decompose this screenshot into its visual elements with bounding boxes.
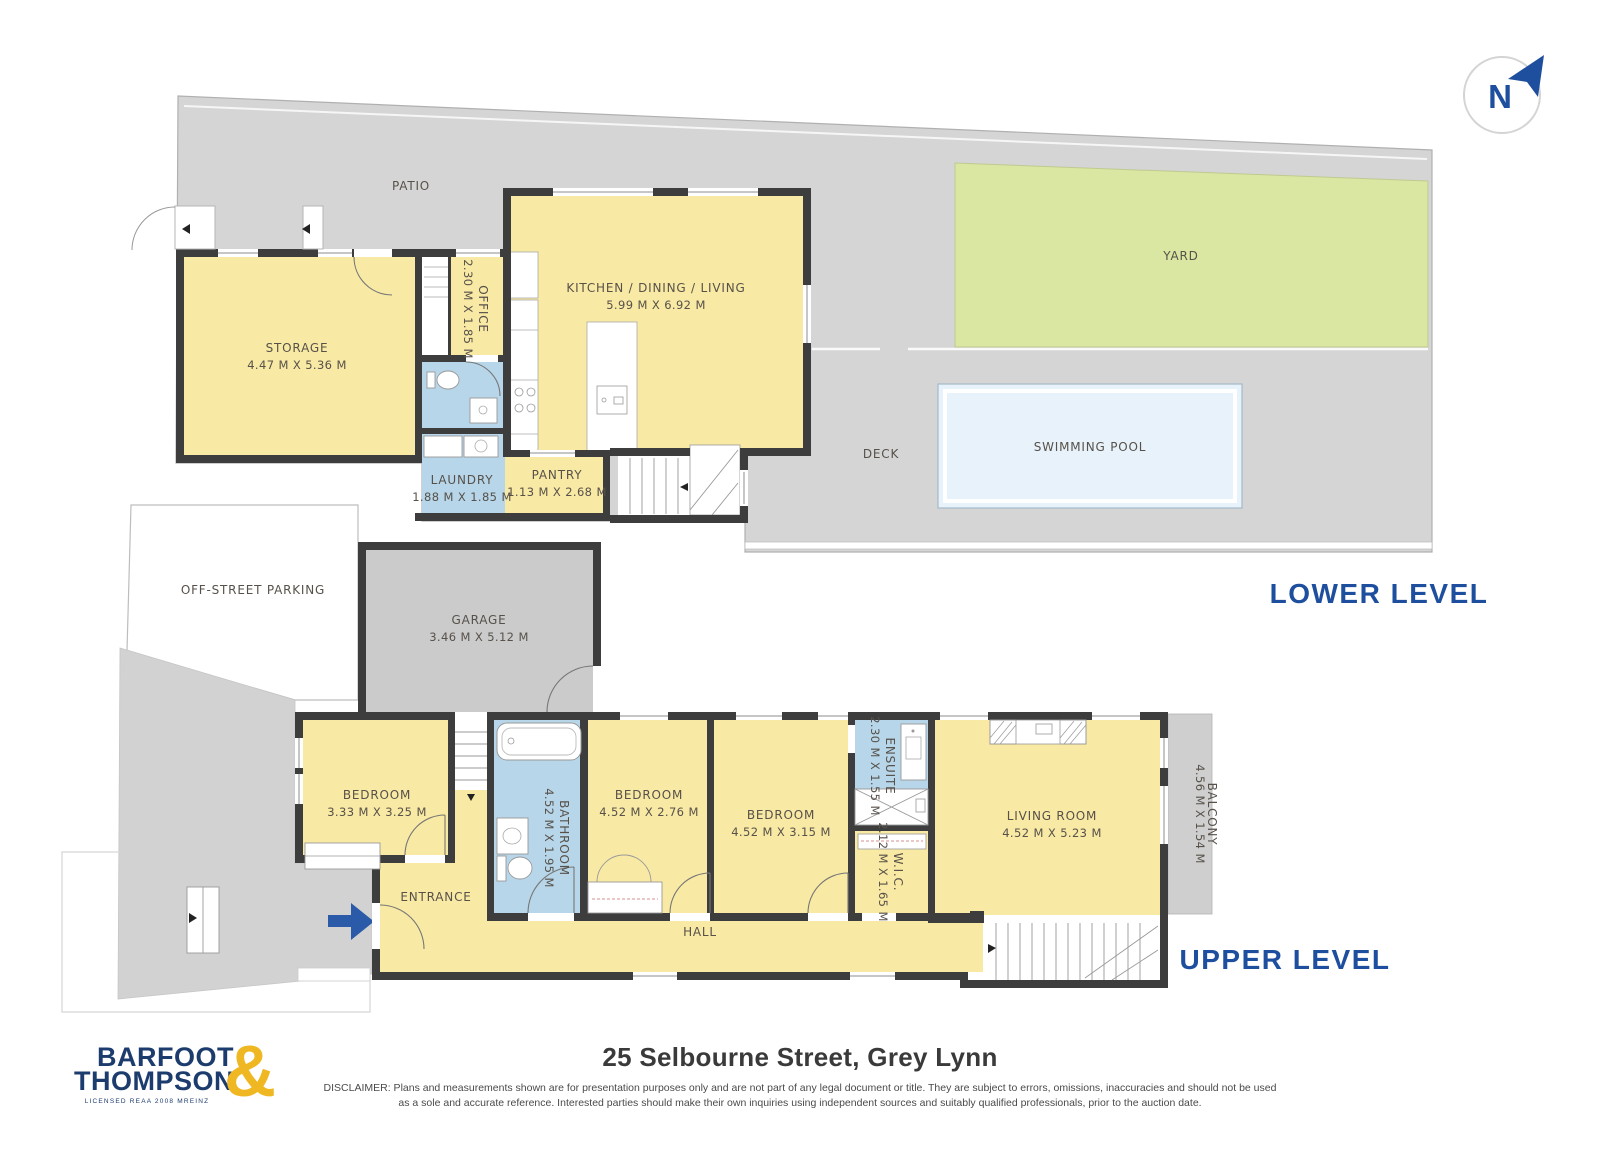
balcony-dims: 4.56 M X 1.54 M (1193, 764, 1207, 864)
floor-plan-page: PATIO STORAGE 4.47 M X 5.36 M OFFICE 2.3… (0, 0, 1600, 1167)
wic-label: W.I.C. (891, 853, 905, 892)
office-dims: 2.30 M X 1.85 M (461, 259, 475, 359)
toilet-icon (427, 372, 435, 388)
bedroom1-dims: 3.33 M X 3.25 M (327, 805, 427, 819)
toilet-icon (497, 856, 506, 881)
front-path (298, 968, 370, 981)
pantry-label: PANTRY (532, 468, 583, 482)
office-label: OFFICE (476, 285, 490, 333)
storage-label: STORAGE (266, 341, 329, 355)
living-room-dims: 4.52 M X 5.23 M (1002, 826, 1102, 840)
kitchen-label: KITCHEN / DINING / LIVING (566, 281, 745, 295)
logo-tagline: LICENSED REAA 2008 MREINZ (60, 1099, 234, 1105)
basin-icon (497, 818, 528, 854)
logo-line-2: THOMPSON (60, 1070, 234, 1094)
lower-hall-stairs (422, 257, 451, 355)
living-room-label: LIVING ROOM (1007, 809, 1097, 823)
floor-plan-canvas: PATIO STORAGE 4.47 M X 5.36 M OFFICE 2.3… (0, 0, 1600, 1167)
kitchen-dims: 5.99 M X 6.92 M (606, 298, 706, 312)
lower-level-title: LOWER LEVEL (1270, 578, 1489, 609)
garage-label: GARAGE (451, 613, 506, 627)
exterior-steps (187, 887, 219, 953)
storage-room (184, 257, 415, 455)
deck-label: DECK (863, 447, 900, 461)
north-label: N (1488, 78, 1512, 115)
bedroom1-label: BEDROOM (343, 788, 411, 802)
bedroom1-closet (305, 843, 380, 869)
upper-level-title: UPPER LEVEL (1180, 944, 1391, 975)
entrance-label: ENTRANCE (400, 890, 471, 904)
storage-dims: 4.47 M X 5.36 M (247, 358, 347, 372)
bedroom3-label: BEDROOM (747, 808, 815, 822)
garage-door-opening (593, 666, 601, 712)
deck-edge-line (745, 542, 1432, 549)
ensuite-label: ENSUITE (883, 737, 897, 794)
wic-rail (858, 834, 926, 849)
logo-ampersand-icon: & (224, 1036, 276, 1108)
pantry-dims: 1.13 M X 2.68 M (507, 485, 607, 499)
washer-icon (424, 436, 462, 457)
patio-label: PATIO (392, 179, 430, 193)
garage-dims: 3.46 M X 5.12 M (429, 630, 529, 644)
fireplace-icon (990, 720, 1086, 744)
laundry-dims: 1.88 M X 1.85 M (412, 490, 512, 504)
sink-icon (597, 386, 627, 414)
bathroom-label: BATHROOM (557, 800, 571, 876)
yard-label: YARD (1162, 249, 1198, 263)
barfoot-thompson-logo: BARFOOT THOMPSON & LICENSED REAA 2008 MR… (60, 1046, 234, 1104)
wic-dims: 2.12 M X 1.65 M (876, 822, 890, 922)
bedroom3-dims: 4.52 M X 3.15 M (731, 825, 831, 839)
north-compass-icon: N (1464, 55, 1544, 133)
patio-door-arc (132, 207, 175, 250)
ensuite-dims: 2.30 M X 1.55 M (868, 716, 882, 816)
upper-small-stairs (455, 720, 487, 801)
kitchen-dining-living-room (510, 196, 803, 452)
bedroom2-dims: 4.52 M X 2.76 M (599, 805, 699, 819)
bathroom-dims: 4.52 M X 1.95 M (542, 788, 556, 888)
off-street-parking-label: OFF-STREET PARKING (181, 583, 325, 597)
bedroom2-label: BEDROOM (615, 788, 683, 802)
upper-stairs (983, 923, 1160, 980)
laundry-label: LAUNDRY (431, 473, 494, 487)
basin-icon (470, 398, 497, 423)
swimming-pool-label: SWIMMING POOL (1034, 440, 1147, 454)
laundry-tub-icon (464, 436, 498, 457)
hall-label: HALL (683, 925, 717, 939)
laundry-fixtures (424, 436, 498, 457)
